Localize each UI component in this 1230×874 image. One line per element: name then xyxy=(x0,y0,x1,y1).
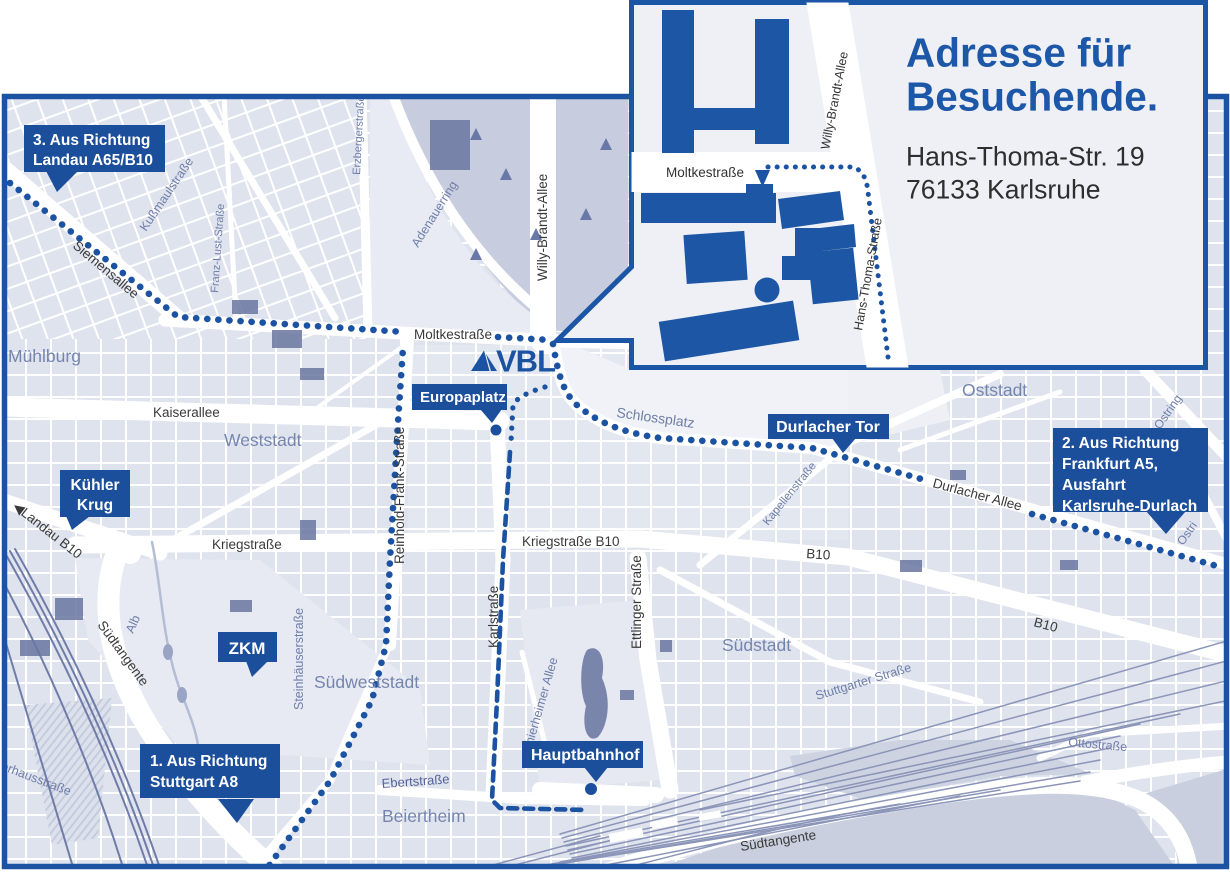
svg-text:1. Aus Richtung: 1. Aus Richtung xyxy=(150,753,267,770)
svg-text:Ettlinger Straße: Ettlinger Straße xyxy=(629,555,644,649)
svg-text:Stuttgart A8: Stuttgart A8 xyxy=(150,774,238,791)
svg-text:Krug: Krug xyxy=(77,497,113,514)
svg-text:Hans-Thoma-Str. 19: Hans-Thoma-Str. 19 xyxy=(906,142,1145,172)
svg-text:ZKM: ZKM xyxy=(229,639,266,658)
svg-text:Steinhäuserstraße: Steinhäuserstraße xyxy=(292,608,306,710)
svg-text:Kühler: Kühler xyxy=(70,477,119,494)
svg-text:Landau A65/B10: Landau A65/B10 xyxy=(33,152,153,169)
svg-text:Reinhold-Frank-Straße: Reinhold-Frank-Straße xyxy=(392,427,407,564)
svg-text:Karlstraße: Karlstraße xyxy=(486,586,501,648)
svg-text:Kriegstraße: Kriegstraße xyxy=(212,537,282,552)
svg-text:Frankfurt A5,: Frankfurt A5, xyxy=(1062,456,1158,473)
svg-text:Besuchende.: Besuchende. xyxy=(906,74,1158,120)
svg-text:VBL: VBL xyxy=(496,344,555,379)
svg-text:76133 Karlsruhe: 76133 Karlsruhe xyxy=(906,175,1100,205)
svg-text:Südstadt: Südstadt xyxy=(722,635,791,655)
svg-text:Südweststadt: Südweststadt xyxy=(314,672,419,692)
svg-text:Mühlburg: Mühlburg xyxy=(8,346,81,366)
svg-text:3. Aus Richtung: 3. Aus Richtung xyxy=(33,132,150,149)
svg-text:Willy-Brandt-Allee: Willy-Brandt-Allee xyxy=(535,174,550,281)
svg-text:Durlacher Tor: Durlacher Tor xyxy=(776,419,880,436)
svg-text:Moltkestraße: Moltkestraße xyxy=(666,165,744,180)
svg-text:B10: B10 xyxy=(806,546,831,563)
svg-text:Karlsruhe-Durlach: Karlsruhe-Durlach xyxy=(1062,498,1197,515)
svg-text:Oststadt: Oststadt xyxy=(962,380,1027,400)
svg-text:Kriegstraße B10: Kriegstraße B10 xyxy=(522,534,620,549)
svg-text:Beiertheim: Beiertheim xyxy=(382,806,466,826)
svg-text:Europaplatz: Europaplatz xyxy=(420,389,506,406)
svg-text:2. Aus Richtung: 2. Aus Richtung xyxy=(1062,435,1179,452)
svg-text:Moltkestraße: Moltkestraße xyxy=(414,327,492,342)
svg-text:Kaiserallee: Kaiserallee xyxy=(153,405,220,420)
svg-text:Ausfahrt: Ausfahrt xyxy=(1062,477,1126,494)
svg-text:Hauptbahnhof: Hauptbahnhof xyxy=(531,747,640,764)
svg-text:Adresse für: Adresse für xyxy=(906,30,1131,76)
svg-text:Weststadt: Weststadt xyxy=(224,430,302,450)
